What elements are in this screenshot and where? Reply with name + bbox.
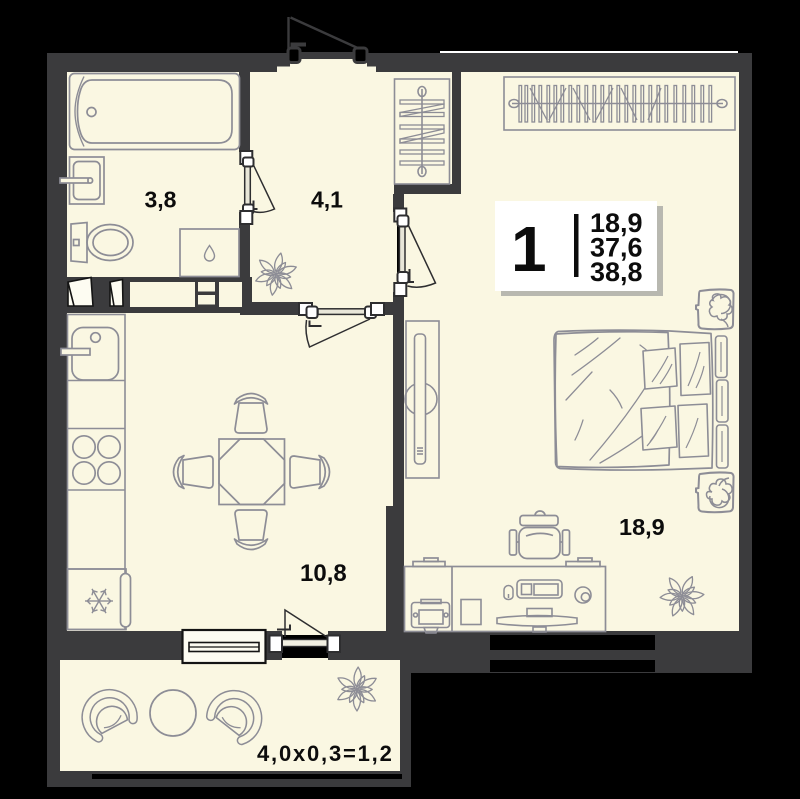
svg-text:3,8: 3,8 (145, 187, 177, 213)
svg-text:4,0x0,3=1,2: 4,0x0,3=1,2 (257, 741, 394, 766)
svg-text:38,8: 38,8 (590, 257, 643, 287)
svg-text:18,9: 18,9 (619, 514, 665, 540)
svg-text:1: 1 (511, 213, 547, 285)
svg-text:4,1: 4,1 (311, 187, 343, 213)
svg-text:10,8: 10,8 (300, 560, 347, 587)
